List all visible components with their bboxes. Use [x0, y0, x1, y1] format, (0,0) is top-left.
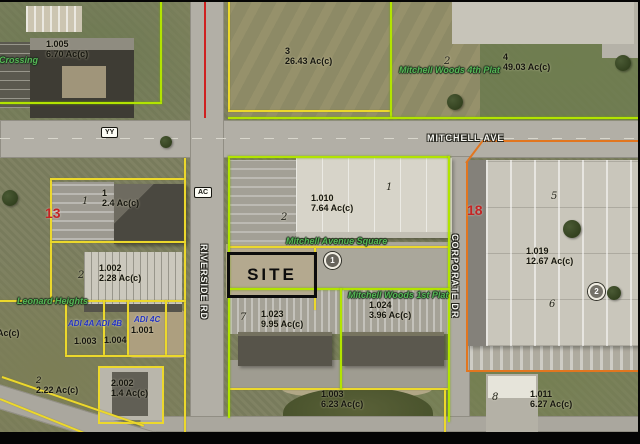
site-label: SITE	[247, 265, 297, 285]
parcel-line-yellow	[50, 241, 186, 243]
parcel-line-orange	[466, 370, 640, 372]
parcel-label: 1.0107.64 Ac(c)	[311, 194, 353, 214]
plat-name-mitchell-avenue-square: Mitchell Avenue Square	[286, 236, 387, 246]
parcel-line-yellow	[228, 246, 448, 248]
figure-number: 8	[492, 392, 498, 403]
parcel-label: 326.43 Ac(c)	[285, 47, 332, 67]
acreage: 2.28 Ac(c)	[99, 274, 141, 284]
acreage: 2.4 Ac(c)	[102, 199, 139, 209]
acreage: 12.67 Ac(c)	[526, 257, 573, 267]
tree	[615, 55, 631, 71]
road-centerline-mitchell	[0, 138, 640, 139]
parcel-label: 1.0243.96 Ac(c)	[369, 301, 411, 321]
parcel-line-yellow	[444, 388, 446, 432]
figure-number: 2	[281, 212, 287, 223]
parcel-line-green	[0, 102, 162, 104]
parcel-label: 449.03 Ac(c)	[503, 53, 550, 73]
route-sign-ac: AC	[194, 187, 212, 198]
subdivision-label: ADI 4A ADI 4B	[68, 319, 122, 328]
parcel-line-orange	[482, 140, 640, 142]
acreage: 7.64 Ac(c)	[311, 204, 353, 214]
road-bottom	[140, 416, 640, 432]
figure-number: 1	[82, 196, 88, 207]
parcel-line-yellow	[103, 300, 105, 357]
parcel-label: 22.22 Ac(c)	[36, 376, 78, 396]
circle-marker-text: 2	[594, 287, 598, 296]
circle-marker-2: 2	[588, 283, 605, 300]
parcel-line-green	[228, 117, 640, 119]
small-lot-label: 1.001	[131, 326, 154, 336]
parcel-label: 2.0021.4 Ac(c)	[111, 379, 148, 399]
route-red-line	[204, 0, 206, 118]
building-top-left-courtyard	[62, 66, 106, 98]
parcel-line-yellow	[65, 302, 67, 357]
parcel-label: 1.0036.23 Ac(c)	[321, 390, 363, 410]
small-lot-label: 1.003	[74, 337, 97, 347]
circle-marker-1: 1	[324, 252, 341, 269]
acreage: 6.70 Ac(c)	[46, 50, 88, 60]
acreage: 3.96 Ac(c)	[369, 311, 411, 321]
acreage: 2.22 Ac(c)	[36, 386, 78, 396]
parcel-line-yellow	[228, 110, 392, 112]
parcel-line-yellow	[228, 0, 230, 112]
plat-name-crossing: de Crossing	[0, 55, 38, 65]
road-label-mitchell-ave: MITCHELL AVE	[427, 133, 504, 143]
plat-name-leonard-heights: Leonard Heights	[17, 296, 88, 306]
parcel-line-yellow	[127, 300, 129, 357]
parcel-line-yellow	[50, 178, 186, 180]
frame-bottom	[0, 432, 640, 444]
site-outline-box: SITE	[227, 252, 317, 298]
parcel-line-green	[390, 0, 392, 119]
figure-number: 2	[78, 270, 84, 281]
tree	[160, 136, 172, 148]
parking-plaza-west	[228, 160, 296, 242]
building-strip-b	[342, 332, 444, 366]
acreage: 6.27 Ac(c)	[530, 400, 572, 410]
acreage: 26.43 Ac(c)	[285, 57, 332, 67]
partial-acreage-label: Ac(c)	[0, 329, 20, 339]
parcel-label: 12.4 Ac(c)	[102, 189, 139, 209]
building-top-right	[452, 2, 640, 44]
parcel-line-orange	[466, 162, 468, 372]
plat-name-mitchell-woods-1st: Mitchell Woods 1st Plat	[348, 290, 448, 300]
route-sign-yy: YY	[101, 127, 118, 138]
tree	[563, 220, 581, 238]
parcel-line-green	[228, 156, 450, 158]
tree	[607, 286, 621, 300]
parcel-line-green	[160, 0, 162, 104]
tree	[2, 190, 18, 206]
field-top-middle	[228, 0, 480, 118]
apron-right-building	[470, 346, 640, 372]
small-lot-label: 1.004	[104, 336, 127, 346]
building-top-left-corner	[26, 6, 82, 32]
acreage: 49.03 Ac(c)	[503, 63, 550, 73]
parcel-line-green	[340, 288, 342, 390]
parcel-label: 1.01912.67 Ac(c)	[526, 247, 573, 267]
map-canvas[interactable]: SITE MITCHELL AVE RIVERSIDE RD CORPORATE…	[0, 0, 640, 444]
road-label-corporate-dr: CORPORATE DR	[450, 234, 460, 302]
road-riverside-rd	[190, 0, 224, 432]
parcel-line-yellow	[65, 355, 186, 357]
frame-top	[0, 0, 640, 2]
road-label-riverside-rd: RIVERSIDE RD	[199, 244, 209, 312]
figure-number: 6	[549, 299, 555, 310]
parcel-label: 1.0239.95 Ac(c)	[261, 310, 303, 330]
acreage: 9.95 Ac(c)	[261, 320, 303, 330]
section-number-18: 18	[467, 202, 483, 218]
parcel-label: 1.0022.28 Ac(c)	[99, 264, 141, 284]
parcel-label: 1.0056.70 Ac(c)	[46, 40, 88, 60]
figure-number: 5	[551, 191, 557, 202]
subdivision-label: ADI 4C	[134, 315, 160, 324]
figure-number: 7	[240, 312, 246, 323]
road-mitchell-ave	[0, 120, 640, 158]
circle-marker-text: 1	[330, 256, 334, 265]
parcel-line-yellow	[165, 300, 167, 357]
figure-number: 2	[444, 56, 450, 67]
acreage: 1.4 Ac(c)	[111, 389, 148, 399]
acreage: 6.23 Ac(c)	[321, 400, 363, 410]
parcel-line-yellow	[184, 158, 186, 432]
parcel-label: 1.0116.27 Ac(c)	[530, 390, 572, 410]
section-number-13: 13	[45, 205, 61, 221]
building-strip-a	[238, 332, 332, 366]
tree	[447, 94, 463, 110]
figure-number: 1	[386, 182, 392, 193]
